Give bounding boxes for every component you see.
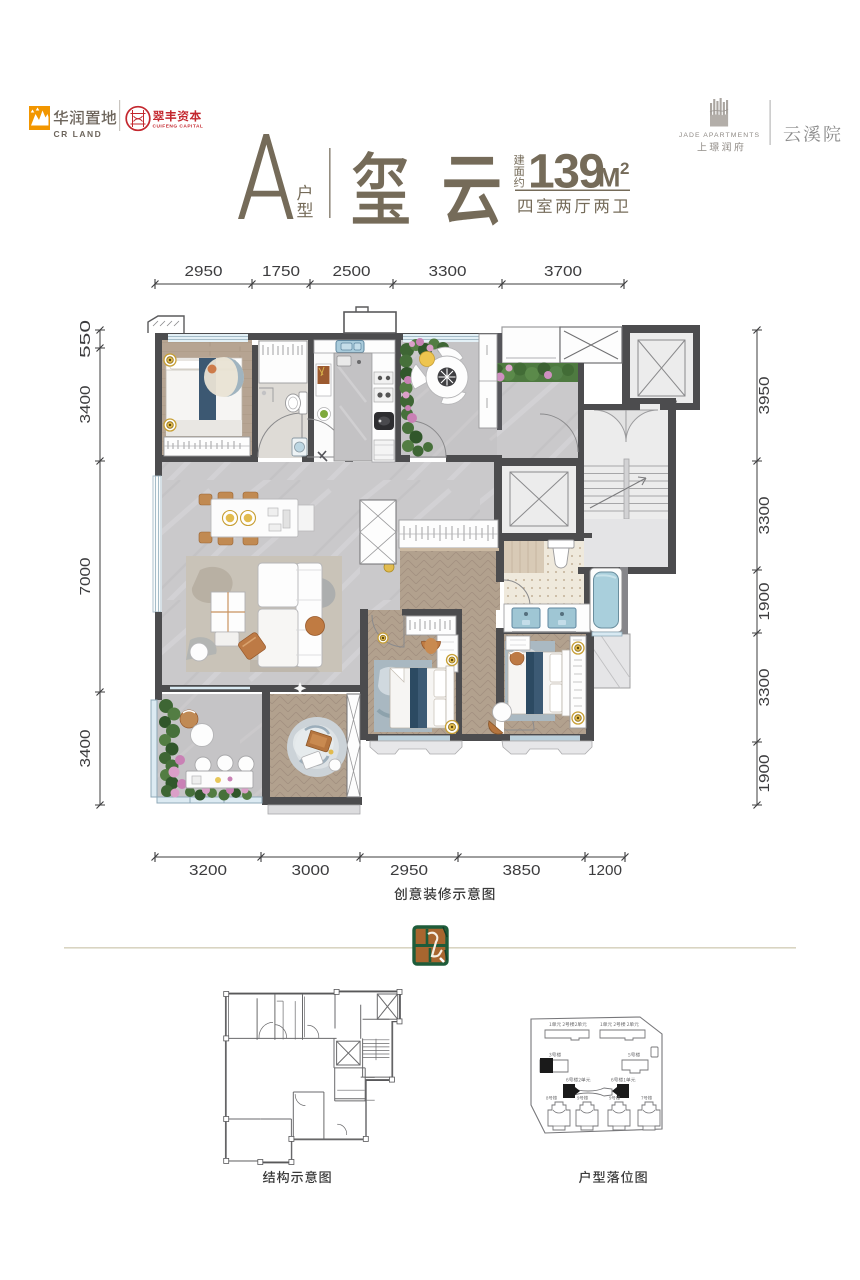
svg-text:2500: 2500 <box>333 263 371 280</box>
svg-text:7000: 7000 <box>77 558 94 596</box>
svg-text:2: 2 <box>620 159 629 178</box>
svg-text:CR LAND: CR LAND <box>54 129 103 139</box>
svg-text:3300: 3300 <box>756 497 773 535</box>
svg-text:3400: 3400 <box>77 386 94 424</box>
svg-text:550: 550 <box>77 320 94 358</box>
svg-text:1900: 1900 <box>756 583 773 621</box>
svg-text:JADE APARTMENTS: JADE APARTMENTS <box>679 132 760 139</box>
svg-text:3700: 3700 <box>544 263 582 280</box>
svg-text:3300: 3300 <box>756 669 773 707</box>
svg-text:M: M <box>598 163 621 193</box>
svg-text:3850: 3850 <box>503 862 541 879</box>
svg-text:1200: 1200 <box>588 862 622 879</box>
svg-text:CUIFENG CAPITAL: CUIFENG CAPITAL <box>153 124 204 130</box>
svg-text:3400: 3400 <box>77 730 94 768</box>
svg-text:1900: 1900 <box>756 755 773 793</box>
svg-text:1750: 1750 <box>262 263 300 280</box>
svg-text:3200: 3200 <box>189 862 227 879</box>
svg-text:3000: 3000 <box>292 862 330 879</box>
svg-text:2950: 2950 <box>390 862 428 879</box>
svg-text:3300: 3300 <box>429 263 467 280</box>
svg-text:3950: 3950 <box>756 377 773 415</box>
svg-text:2950: 2950 <box>185 263 223 280</box>
